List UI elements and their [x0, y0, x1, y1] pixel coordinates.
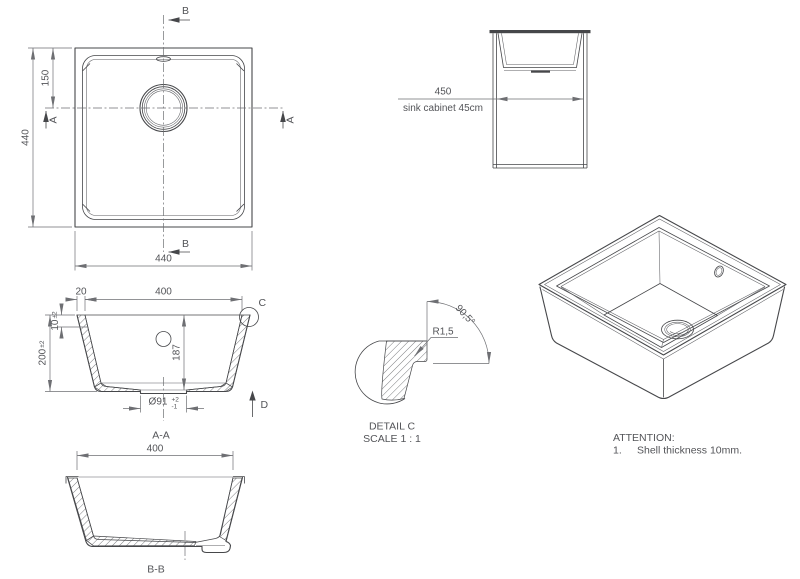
- cabinet-view: 450 sink cabinet 45cm: [398, 30, 591, 168]
- section-label: B: [182, 5, 189, 17]
- dimension-opening: 400: [77, 444, 233, 471]
- cabinet-caption: sink cabinet 45cm: [403, 103, 483, 114]
- attention-item-text: Shell thickness 10mm.: [637, 445, 742, 457]
- direction-d-marker: D: [249, 391, 268, 418]
- rim-underside: [543, 290, 784, 360]
- technical-drawing-sheet: 440 440 150 B B A A: [0, 0, 800, 579]
- overflow-hole: [156, 332, 171, 347]
- radius-text: R1,5: [433, 327, 455, 338]
- dim-text: 450: [435, 87, 452, 98]
- attention-heading: ATTENTION:: [613, 432, 675, 444]
- dim-text: 440: [155, 254, 172, 265]
- section-marker-b-bottom: B: [169, 238, 191, 252]
- bowl-outer: [498, 33, 582, 67]
- section-marker-a-right: A: [283, 111, 297, 129]
- sink-technical-drawing: 440 440 150 B B A A: [0, 0, 800, 579]
- section-bb-label: B-B: [147, 564, 165, 576]
- dim-text: 20: [75, 287, 87, 298]
- dim-tol-plus: +2: [172, 397, 180, 404]
- attention-item-number: 1.: [613, 445, 622, 457]
- dim-text: 10±2: [50, 311, 61, 331]
- attention-note: ATTENTION: 1. Shell thickness 10mm.: [613, 432, 742, 457]
- section-bb-view: 400 B-B: [66, 444, 245, 576]
- detail-title: DETAIL C: [369, 421, 416, 433]
- countertop: [490, 30, 591, 33]
- detail-label: C: [259, 297, 267, 309]
- section-label: B: [182, 238, 189, 250]
- section-label: A: [285, 116, 297, 123]
- body-silhouette: [540, 287, 785, 399]
- dimension-inner-depth: 187: [172, 315, 185, 390]
- plan-view: 440 440 150 B B A A: [21, 5, 297, 271]
- dim-tol-minus: -1: [172, 404, 178, 411]
- dim-text: 200±2: [38, 340, 49, 365]
- centerlines: [45, 15, 283, 252]
- dimension-drain-offset: 150: [41, 48, 54, 108]
- detail-scale: SCALE 1 : 1: [363, 433, 421, 445]
- dim-text: 150: [41, 69, 52, 86]
- bowl-corner-edges: [561, 231, 765, 348]
- section-marker-b-top: B: [169, 5, 191, 20]
- isometric-view: [539, 216, 786, 399]
- dim-text: 440: [21, 129, 32, 146]
- dimension-cabinet-width: 450 sink cabinet 45cm: [398, 87, 583, 115]
- dim-text: 400: [155, 287, 172, 298]
- dim-text: Ø91: [149, 397, 168, 408]
- drain-ledge: [202, 546, 231, 553]
- wall-hatch-left: [77, 315, 101, 387]
- dim-text: 400: [147, 444, 164, 455]
- bowl-inner: [502, 33, 579, 64]
- section-marker-a-left: A: [46, 111, 60, 129]
- direction-label: D: [261, 399, 269, 411]
- wall-hatch-left: [68, 478, 94, 541]
- dim-text: 187: [172, 344, 183, 361]
- drain-stub: [531, 71, 550, 73]
- dimension-wall-top: 20: [66, 287, 242, 312]
- section-aa-view: 20 400 10±2 200±2 187 Ø91 +2 -1: [38, 287, 269, 442]
- dimension-opening: 400: [85, 287, 242, 300]
- detail-c-view: 90,5° R1,5 DETAIL C SCALE 1 : 1: [355, 302, 489, 446]
- overflow-iso: [713, 265, 725, 279]
- angle-text: 90,5°: [453, 303, 477, 328]
- shell-inner: [77, 478, 233, 543]
- section-label: A: [48, 116, 60, 123]
- mounting-flanges: [66, 477, 245, 484]
- section-aa-label: A-A: [152, 430, 170, 442]
